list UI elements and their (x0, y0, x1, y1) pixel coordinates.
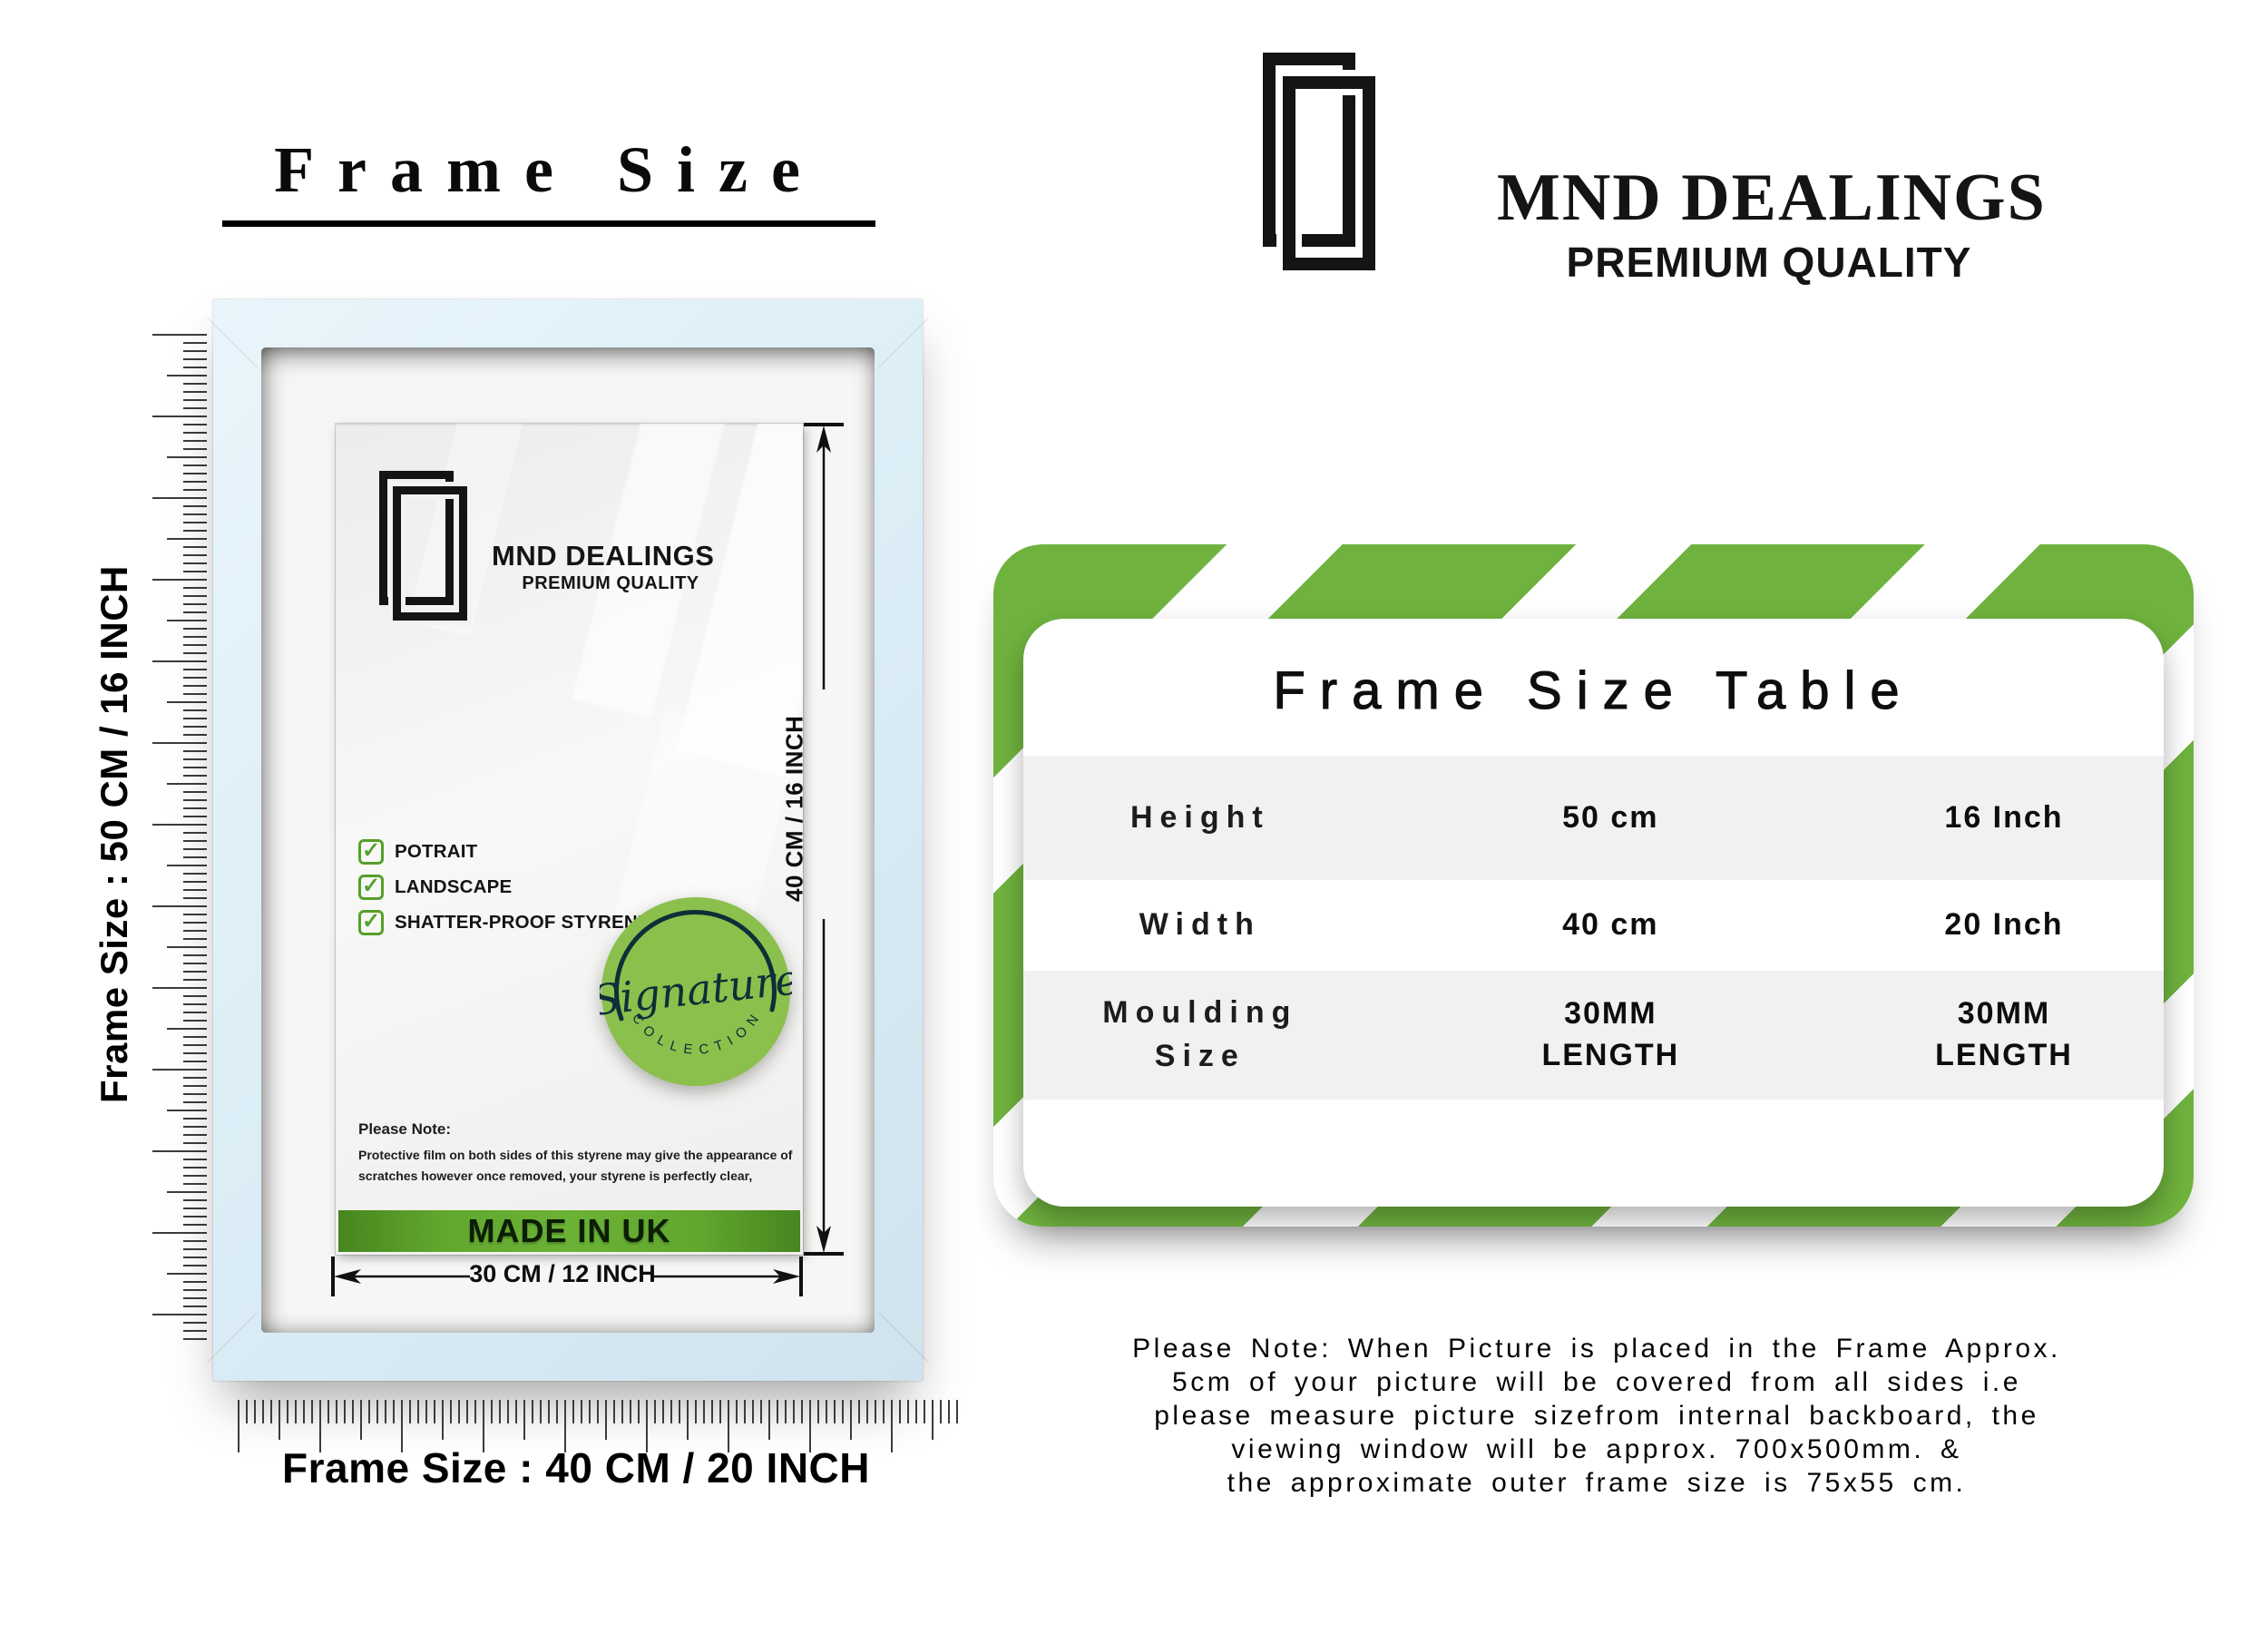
row-label: Height (1130, 797, 1270, 840)
table-title: Frame Size Table (1023, 660, 2164, 721)
row-value-inch: 20 Inch (1944, 905, 2063, 946)
insert-note-body: Protective film on both sides of this st… (358, 1145, 799, 1187)
frame-size-table-card: Frame Size Table Height 50 cm 16 Inch Wi… (1023, 619, 2164, 1207)
width-dimension-label: 30 CM / 12 INCH (435, 1260, 689, 1288)
table-row: Width 40 cm 20 Inch (1023, 880, 2164, 971)
checkbox-icon: ✓ (358, 875, 384, 900)
table-row: Height 50 cm 16 Inch (1023, 756, 2164, 880)
feature-item: ✓ POTRAIT (358, 839, 650, 865)
footer-note-line: viewing window will be approx. 700x500mm… (984, 1433, 2209, 1466)
row-value-cm: 30MM LENGTH (1515, 993, 1706, 1077)
table-row: Moulding Size 30MM LENGTH 30MM LENGTH (1023, 971, 2164, 1100)
row-value-cm: 40 cm (1562, 905, 1658, 946)
footer-note-line: please measure picture sizefrom internal… (984, 1399, 2209, 1433)
ruler-fine-ticks (183, 334, 207, 1345)
checkbox-icon: ✓ (358, 839, 384, 865)
row-value-inch: 30MM LENGTH (1909, 993, 2099, 1077)
size-table: Height 50 cm 16 Inch Width 40 cm 20 Inch… (1023, 756, 2164, 1100)
mnd-brand-icon (1263, 53, 1408, 288)
frame-mitre-line (878, 318, 929, 368)
insert-logo-tagline: PREMIUM QUALITY (492, 573, 729, 594)
vertical-ruler (152, 334, 207, 1345)
footer-note-line: Please Note: When Picture is placed in t… (984, 1332, 2209, 1365)
horizontal-ruler-label: Frame Size : 40 CM / 20 INCH (213, 1443, 939, 1492)
feature-label: POTRAIT (395, 841, 477, 863)
brand-tagline: PREMIUM QUALITY (1506, 238, 2032, 287)
row-value-cm: 50 cm (1562, 797, 1658, 839)
insert-note: Please Note: Protective film on both sid… (358, 1120, 799, 1187)
footer-note-line: the approximate outer frame size is 75x5… (984, 1466, 2209, 1500)
feature-label: LANDSCAPE (395, 876, 512, 898)
footer-note-line: 5cm of your picture will be covered from… (984, 1365, 2209, 1399)
row-label: Width (1139, 904, 1261, 947)
mnd-logo-icon (379, 471, 470, 625)
logo-rectangle (1283, 76, 1375, 270)
made-in-uk-banner: MADE IN UK (338, 1210, 800, 1252)
frame-mitre-line (207, 1312, 258, 1363)
brand-name: MND DEALINGS (1497, 160, 2047, 237)
frame-mitre-line (878, 1312, 929, 1363)
insert-note-title: Please Note: (358, 1120, 799, 1139)
row-label: Moulding Size (1064, 992, 1336, 1078)
logo-rectangle (393, 486, 467, 621)
signature-collection-badge: Signature C O L L E C T I O N (600, 895, 792, 1088)
ruler-fine-ticks (238, 1400, 963, 1423)
footer-note: Please Note: When Picture is placed in t… (984, 1332, 2209, 1500)
insert-logo-name: MND DEALINGS (492, 540, 714, 572)
checkbox-icon: ✓ (358, 910, 384, 935)
frame-mitre-line (207, 318, 258, 368)
page-title: Frame Size (222, 132, 875, 227)
row-value-inch: 16 Inch (1944, 797, 2063, 839)
height-dimension-label: 40 CM / 16 INCH (777, 689, 813, 927)
vertical-ruler-label: Frame Size : 50 CM / 16 INCH (91, 410, 138, 1259)
frame-insert-paper: MND DEALINGS PREMIUM QUALITY ✓ POTRAIT ✓… (336, 424, 803, 1255)
